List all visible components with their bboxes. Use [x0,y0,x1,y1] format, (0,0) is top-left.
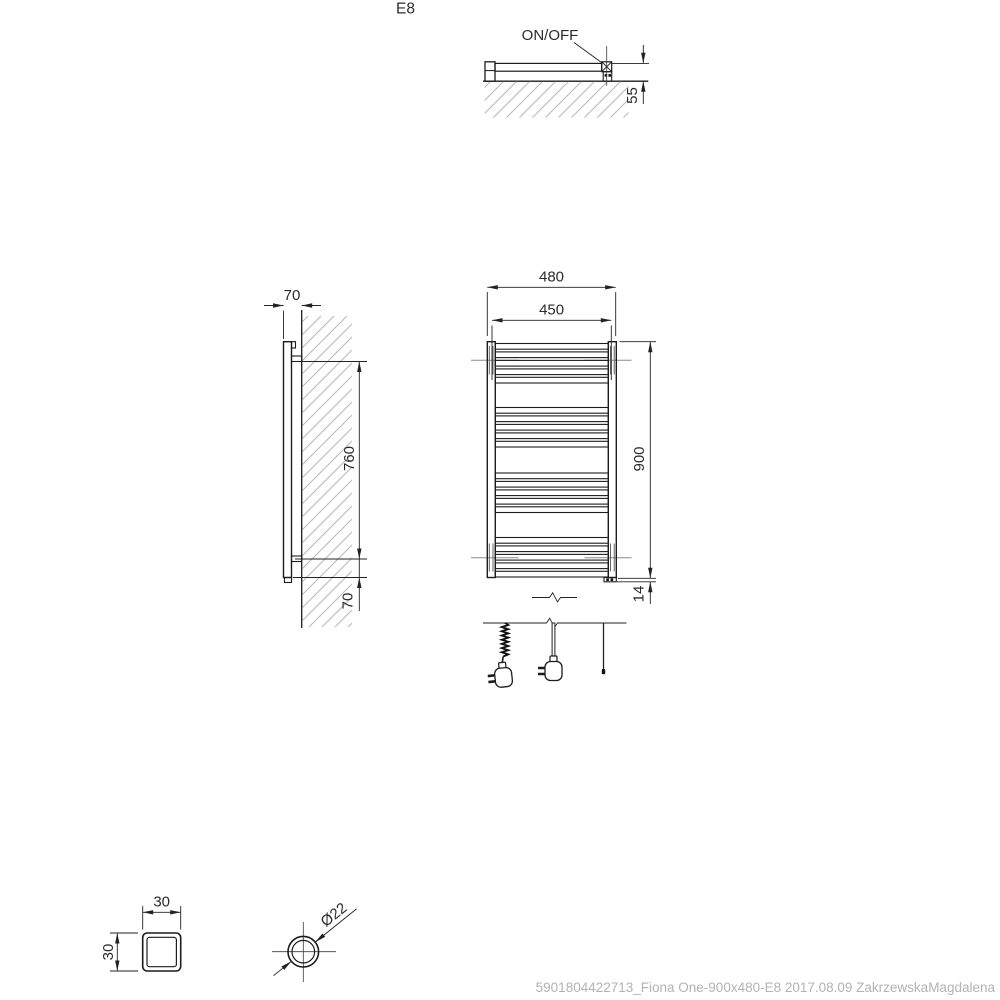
power-plug-icon [487,662,513,689]
cable-options [483,618,627,688]
tube [495,369,608,375]
element-pin [608,74,611,77]
wire-tip [602,669,605,674]
dim-14-label: 14 [631,586,648,603]
tube [495,408,608,414]
tube [495,416,608,422]
collector-left [487,342,495,578]
dim-760-label: 760 [341,446,358,471]
spiral-cable-plug [487,623,513,688]
dim-70-depth-label: 70 [284,287,301,304]
straight-cable-plug [538,623,562,681]
dim-900-label: 900 [631,446,648,471]
dimension-450: 450 [492,301,611,380]
square-profile-detail: 30 30 [100,894,181,972]
element-housing-side [285,578,292,583]
collector-end-cap [485,62,495,81]
wall-hatch-top-view [485,82,629,118]
tube [495,360,608,366]
tube-group-4 [495,538,608,578]
tube [495,507,608,513]
tube [495,473,608,479]
dim-450-label: 450 [539,301,564,318]
tube [495,424,608,430]
dim-30-width-label: 30 [153,894,170,911]
square-profile-inner [147,937,176,966]
dim-diameter-label: Ø22 [318,899,351,930]
tube [495,377,608,383]
dim-70-bottom-label: 70 [340,593,357,610]
radiator-body-top-view [495,63,602,71]
tube-group-2 [495,408,608,448]
bare-wire [602,623,605,674]
dimension-30-height: 30 [100,933,138,971]
technical-drawing-canvas: E8 ON/OFF 55 [0,0,1000,1000]
top-view: ON/OFF 55 [483,27,649,118]
tube [495,481,608,487]
tube [495,546,608,552]
tube [495,441,608,447]
dim-55-label: 55 [624,87,641,104]
dim-30-height-label: 30 [100,944,117,961]
spiral-coil [502,623,508,657]
element-pin [611,578,614,581]
power-plug-icon [538,656,562,681]
element-pin [606,578,609,581]
on-off-label: ON/OFF [522,27,579,44]
tube [495,538,608,544]
tube [495,344,608,350]
on-off-leader-line [574,43,602,63]
tube [495,498,608,504]
front-view: 480 450 900 14 [471,269,656,605]
tube-group-3 [495,473,608,513]
collector-right [608,342,616,578]
model-label: E8 [396,1,415,18]
tube [495,490,608,496]
tube [495,352,608,358]
dimension-14: 14 [617,582,656,604]
tube-group-1 [495,344,608,384]
tube-profile-detail: Ø22 [272,899,357,982]
dimension-diameter-22: Ø22 [274,899,357,975]
footer-note: 5901804422713_Fiona One-900x480-E8 2017.… [536,980,996,995]
straight-cable [552,623,555,657]
dimension-30-width: 30 [143,894,181,930]
square-profile-outer [143,933,181,971]
tube [495,554,608,560]
tube [495,433,608,439]
collector-side-profile [284,342,292,578]
break-symbol [532,593,577,602]
tube [495,571,608,577]
dimension-900: 900 [618,342,656,579]
tube [495,563,608,569]
dim-480-label: 480 [539,269,564,286]
side-view: 70 760 70 [264,287,367,628]
bracket-top-side [292,356,302,362]
